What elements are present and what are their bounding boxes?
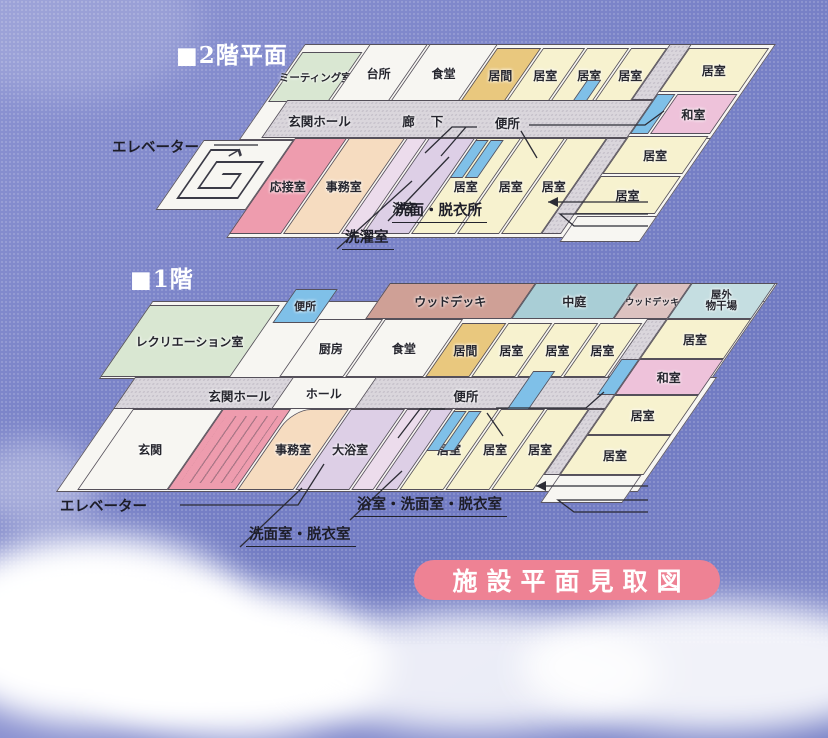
floor2-laundry-label: 洗濯室 bbox=[342, 226, 394, 250]
floor1-plan: ウッドデッキ 中庭 ウッドデッキ 屋外物干場 レクリエーション室 便所 厨房 食… bbox=[81, 283, 800, 513]
corridor-label: 玄関ホール bbox=[288, 111, 351, 130]
corridor-label: 便所 bbox=[453, 386, 478, 405]
floor1-elevator-label: エレベーター bbox=[60, 495, 147, 516]
title-badge-label: 施設平面見取図 bbox=[443, 562, 690, 598]
floor1-title: ■1階 bbox=[130, 260, 194, 294]
stair-landing bbox=[559, 216, 657, 242]
room-wood-deck: ウッドデッキ bbox=[365, 283, 536, 319]
corridor-label: 玄関ホール bbox=[208, 386, 271, 405]
title-badge: 施設平面見取図 bbox=[414, 560, 720, 600]
floor2-washroom-label: 洗面・脱衣所 bbox=[392, 199, 487, 223]
facility-floorplan-page: { "badge": {"label": "施設平面見取図"}, "floor2… bbox=[0, 0, 828, 644]
floor2-plan: ミーティング室 台所 食堂 居間 居室 居室 居室 居室 玄関ホール 廊下 便所… bbox=[202, 44, 810, 244]
cloud bbox=[0, 0, 200, 100]
floor1-washroom-label: 洗面室・脱衣室 bbox=[246, 523, 356, 547]
floor2-title: ■2階平面 bbox=[176, 36, 288, 70]
floor2-elevator-label: エレベーター bbox=[112, 136, 199, 157]
stair-landing bbox=[540, 475, 641, 503]
corridor-label: 廊下 bbox=[402, 111, 459, 130]
corridor-band: 玄関ホール 廊下 便所 bbox=[261, 100, 653, 138]
corridor-label: 便所 bbox=[495, 113, 520, 132]
floor1-bath-washroom-label: 浴室・洗面室・脱衣室 bbox=[354, 493, 507, 517]
